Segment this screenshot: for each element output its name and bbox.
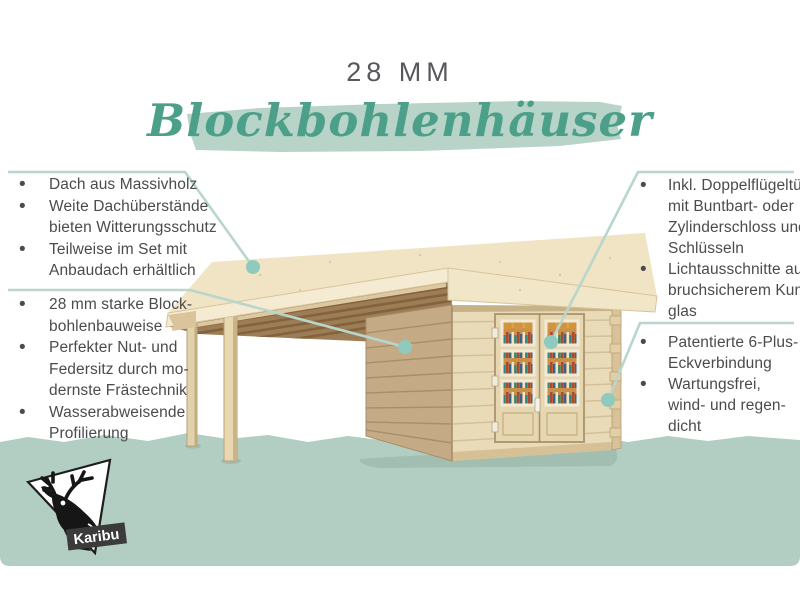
callout-dot-door [544, 335, 558, 349]
feature-line: Eckverbindung [668, 353, 800, 374]
feature-item: • Lichtausschnitte aus bruchsicherem Kun… [634, 259, 800, 322]
feature-line: Zylinderschloss und [668, 217, 800, 238]
feature-line: Patentierte 6-Plus- [668, 332, 800, 353]
feature-item: • Wartungsfrei, wind- und regen- dicht [634, 374, 800, 437]
feature-list-right-top: • Inkl. Doppelflügeltür mit Buntbart- od… [634, 175, 800, 322]
feature-item: • Patentierte 6-Plus- Eckverbindung [634, 332, 800, 374]
feature-item: • Inkl. Doppelflügeltür mit Buntbart- od… [634, 175, 800, 259]
feature-item: • Perfekter Nut- und Federsitz durch mo-… [10, 337, 220, 402]
callout-dot-wall [398, 340, 412, 354]
feature-item: • Teilweise im Set mit Anbaudach erhältl… [10, 239, 220, 282]
feature-line: Lichtausschnitte aus [668, 259, 800, 280]
feature-line: wind- und regen- [668, 395, 800, 416]
poster: Karibu 28 MM Blockbohlenhäuser • Dach au… [0, 0, 800, 600]
feature-line: Anbaudach erhältlich [49, 260, 220, 282]
feature-item: • Dach aus Massivholz [10, 174, 220, 196]
feature-line: Profilierung [49, 423, 220, 445]
bullet-icon: • [634, 259, 668, 281]
page-title: Blockbohlenhäuser [0, 94, 800, 147]
feature-line: dicht [668, 416, 800, 437]
bullet-icon: • [10, 402, 49, 424]
feature-line: Dach aus Massivholz [49, 174, 220, 196]
feature-item: • Wasserabweisende Profilierung [10, 402, 220, 445]
feature-line: glas [668, 301, 800, 322]
feature-line: mit Buntbart- oder [668, 196, 800, 217]
bullet-icon: • [10, 174, 49, 196]
bullet-icon: • [10, 337, 49, 359]
bullet-icon: • [634, 332, 668, 354]
feature-list-right-bottom: • Patentierte 6-Plus- Eckverbindung • Wa… [634, 332, 800, 437]
size-label: 28 MM [0, 57, 800, 88]
feature-line: dernste Frästechnik [49, 380, 220, 402]
feature-item: • 28 mm starke Block- bohlenbauweise [10, 294, 220, 337]
bullet-icon: • [10, 239, 49, 261]
ground-band [0, 433, 800, 566]
feature-item: • Weite Dachüberstände bieten Witterungs… [10, 196, 220, 239]
feature-list-left-top: • Dach aus Massivholz • Weite Dachüberst… [10, 174, 220, 282]
bullet-icon: • [634, 175, 668, 197]
feature-line: Inkl. Doppelflügeltür [668, 175, 800, 196]
cabin-side-wall [366, 305, 452, 461]
callout-dot-roof [246, 260, 260, 274]
door-handle [535, 398, 540, 412]
bullet-icon: • [10, 196, 49, 218]
feature-line: Federsitz durch mo- [49, 359, 220, 381]
callout-dot-corner [601, 393, 615, 407]
feature-line: Schlüsseln [668, 238, 800, 259]
feature-line: Wartungsfrei, [668, 374, 800, 395]
feature-line: Weite Dachüberstände [49, 196, 220, 218]
double-door [492, 314, 584, 442]
feature-line: Wasserabweisende [49, 402, 220, 424]
feature-line: bohlenbauweise [49, 316, 220, 338]
bullet-icon: • [634, 374, 668, 396]
corner-joints [610, 306, 621, 450]
bullet-icon: • [10, 294, 49, 316]
feature-line: bieten Witterungsschutz [49, 217, 220, 239]
feature-list-left-bottom: • 28 mm starke Block- bohlenbauweise • P… [10, 294, 220, 445]
feature-line: Teilweise im Set mit [49, 239, 220, 261]
feature-line: Perfekter Nut- und [49, 337, 220, 359]
feature-line: 28 mm starke Block- [49, 294, 220, 316]
feature-line: bruchsicherem Kunst- [668, 280, 800, 301]
